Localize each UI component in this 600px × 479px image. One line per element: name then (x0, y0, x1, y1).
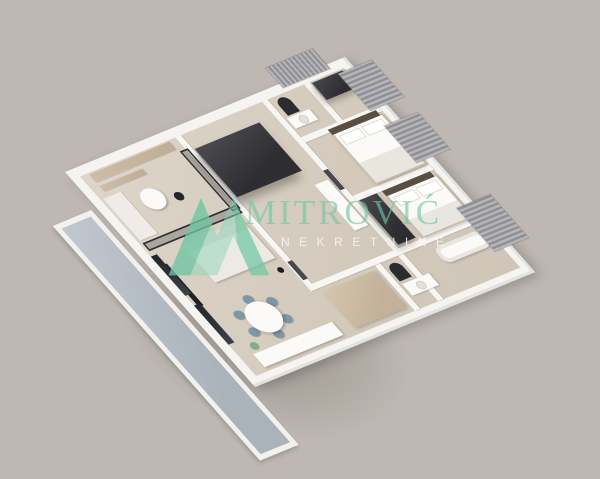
floor-plan-render: MITROVIĆ NEKRETNINE (0, 0, 600, 479)
